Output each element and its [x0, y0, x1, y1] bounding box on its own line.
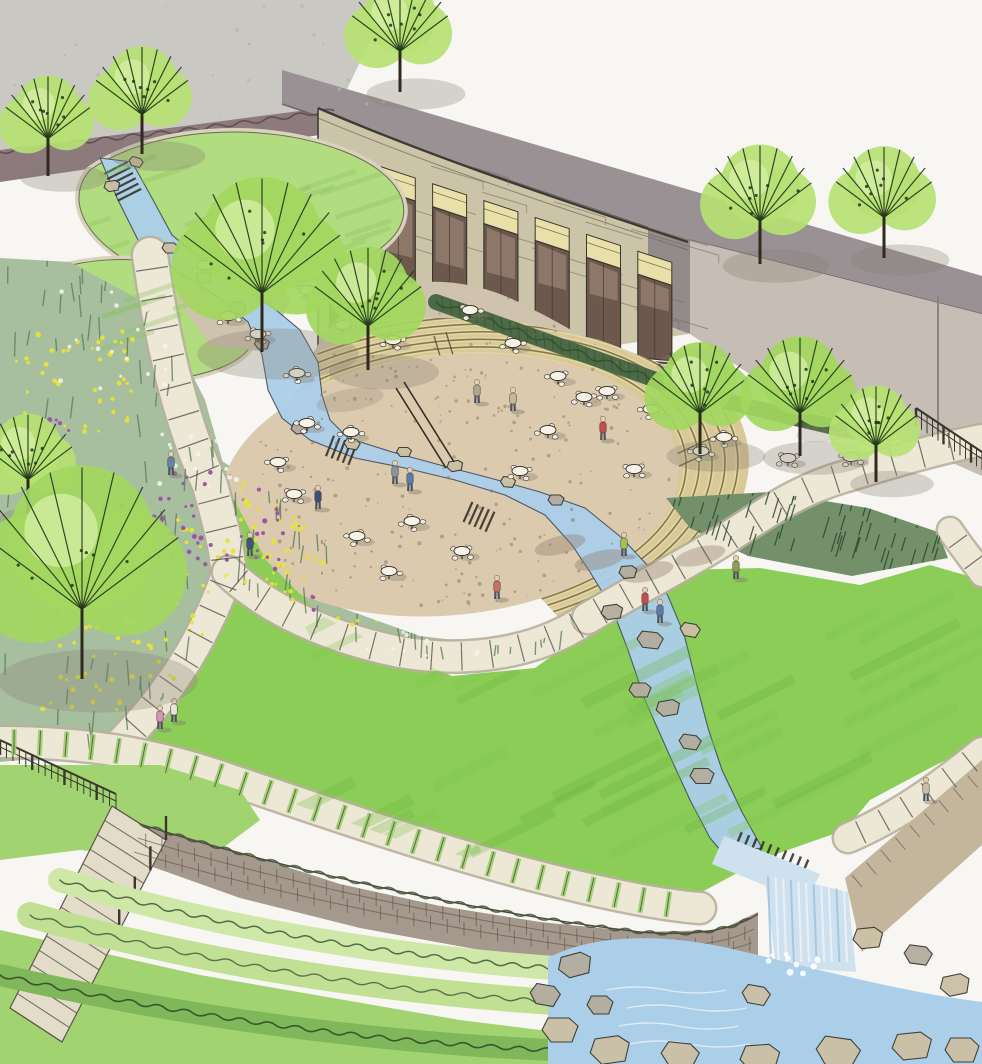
rock [548, 495, 564, 505]
flower-dot-yellow [190, 613, 195, 618]
flower-dot-white [58, 378, 63, 383]
flower-dot-white [110, 290, 113, 293]
flower-dot-yellow [126, 382, 129, 385]
flower-dot-yellow [302, 526, 306, 530]
flower-dot-yellow [132, 640, 135, 643]
flower-dot-yellow [277, 562, 282, 567]
flower-dot-yellow [26, 390, 29, 393]
flower-dot-yellow [117, 381, 122, 386]
flower-dot-purple [208, 470, 213, 475]
flower-dot-yellow [58, 644, 62, 648]
flower-dot-yellow [272, 572, 275, 575]
flower-dot-white [67, 345, 71, 349]
flower-dot-yellow [24, 356, 28, 360]
flower-dot-purple [277, 558, 280, 561]
flower-dot-purple [203, 482, 207, 486]
flower-dot-yellow [185, 540, 189, 544]
flower-dot-yellow [130, 337, 135, 342]
flower-dot-white [227, 475, 232, 480]
flower-dot-yellow [283, 590, 286, 593]
flower-dot-white [98, 386, 102, 390]
rock [629, 683, 651, 697]
flower-dot-yellow [83, 424, 87, 428]
flower-dot-white [162, 382, 167, 387]
flower-dot-yellow [302, 577, 305, 580]
flower-dot-yellow [230, 549, 235, 554]
flower-dot-yellow [256, 508, 259, 511]
flower-dot-yellow [321, 560, 326, 565]
flower-dot-yellow [356, 619, 359, 622]
landscape-rendering-canvas [0, 0, 982, 1064]
flower-dot-yellow [136, 639, 141, 644]
flower-dot-white [405, 633, 409, 637]
flower-dot-yellow [96, 340, 100, 344]
rock [690, 769, 714, 784]
flower-dot-yellow [288, 589, 292, 593]
flower-dot-yellow [222, 549, 227, 554]
flower-dot-white [136, 328, 140, 332]
flower-dot-yellow [98, 357, 102, 361]
flower-dot-yellow [313, 558, 317, 562]
flower-dot-yellow [190, 620, 194, 624]
flower-dot-white [224, 467, 228, 471]
flower-dot-yellow [36, 333, 41, 338]
flower-dot-white [401, 631, 404, 634]
flower-dot-purple [225, 553, 228, 556]
flower-dot-yellow [225, 538, 230, 543]
flower-dot-yellow [207, 590, 210, 593]
flower-dot-yellow [246, 503, 251, 508]
flower-dot-yellow [306, 555, 310, 559]
flower-dot-purple [158, 497, 162, 501]
flower-dot-yellow [176, 518, 180, 522]
flower-dot-white [168, 443, 172, 447]
flower-dot-yellow [271, 539, 276, 544]
flower-dot-yellow [150, 647, 153, 650]
flower-dot-yellow [252, 525, 257, 530]
flower-dot-yellow [129, 389, 132, 392]
flower-dot-purple [160, 516, 165, 521]
flower-dot-purple [266, 556, 269, 559]
flower-dot-yellow [84, 625, 88, 629]
flower-dot-yellow [284, 549, 288, 553]
flower-dot-white [163, 344, 168, 349]
flower-dot-purple [181, 482, 184, 485]
flower-dot-white [189, 434, 194, 439]
flower-dot-yellow [336, 616, 340, 620]
flower-dot-yellow [72, 641, 76, 645]
rock [397, 448, 412, 457]
flower-dot-yellow [122, 349, 126, 353]
flower-dot-yellow [111, 410, 115, 414]
flower-dot-white [114, 303, 118, 307]
flower-dot-yellow [110, 397, 114, 401]
flower-dot-purple [275, 511, 279, 515]
flower-dot-purple [203, 562, 207, 566]
flower-dot-white [196, 452, 200, 456]
flower-dot-yellow [114, 340, 117, 343]
flower-dot-purple [187, 550, 192, 555]
flower-dot-yellow [93, 388, 97, 392]
flower-dot-yellow [125, 418, 130, 423]
landscape-rendering [0, 0, 982, 1064]
flower-dot-yellow [186, 528, 189, 531]
flower-dot-yellow [66, 348, 70, 352]
flower-dot-yellow [120, 329, 124, 333]
flower-dot-purple [192, 514, 195, 517]
flower-dot-yellow [44, 362, 49, 367]
flower-dot-yellow [253, 538, 257, 542]
flower-dot-white [193, 467, 197, 471]
flower-dot-purple [256, 549, 259, 552]
flower-dot-yellow [199, 545, 202, 548]
rock [587, 996, 613, 1014]
flower-dot-yellow [242, 481, 246, 485]
flower-dot-yellow [26, 361, 30, 365]
flower-dot-yellow [189, 528, 194, 533]
flower-dot-purple [58, 421, 62, 425]
flower-dot-white [425, 639, 429, 643]
flower-dot-yellow [275, 503, 278, 506]
flower-dot-white [110, 350, 113, 353]
flower-dot-yellow [40, 371, 44, 375]
flower-dot-white [234, 477, 239, 482]
flower-dot-yellow [164, 638, 168, 642]
flower-dot-white [96, 346, 101, 351]
flower-dot-white [474, 652, 478, 656]
flower-dot-white [75, 338, 78, 341]
flower-dot-yellow [201, 584, 205, 588]
flower-dot-purple [167, 497, 171, 501]
flower-dot-white [164, 367, 167, 370]
flower-dot-yellow [147, 643, 151, 647]
flower-dot-yellow [265, 578, 268, 581]
flower-dot-yellow [216, 555, 220, 559]
flower-dot-yellow [62, 349, 66, 353]
flower-dot-yellow [281, 564, 285, 568]
flower-dot-purple [312, 608, 316, 612]
flower-dot-white [157, 481, 162, 486]
flower-dot-yellow [288, 549, 291, 552]
flower-dot-purple [181, 526, 186, 531]
flower-dot-yellow [49, 348, 54, 353]
flower-dot-purple [274, 507, 278, 511]
flower-dot-yellow [97, 430, 100, 433]
flower-dot-yellow [116, 636, 120, 640]
flower-dot-purple [261, 531, 265, 535]
flower-dot-purple [199, 535, 204, 540]
flower-dot-purple [190, 504, 194, 508]
flower-dot-yellow [290, 598, 294, 602]
flower-dot-yellow [98, 398, 102, 402]
flower-dot-white [391, 647, 395, 651]
flower-dot-purple [276, 519, 279, 522]
flower-dot-white [184, 459, 187, 462]
flower-dot-purple [273, 567, 277, 571]
flower-dot-yellow [243, 580, 247, 584]
flower-dot-white [125, 356, 129, 360]
flower-dot-white [160, 433, 164, 437]
window [635, 251, 675, 363]
flower-dot-purple [192, 534, 197, 539]
flower-dot-yellow [201, 633, 204, 636]
flower-dot-yellow [122, 377, 126, 381]
flower-dot-yellow [120, 341, 123, 344]
flower-dot-purple [196, 541, 199, 544]
flower-dot-yellow [239, 488, 243, 492]
flower-dot-white [169, 446, 172, 449]
flower-dot-yellow [285, 569, 290, 574]
flower-dot-yellow [290, 524, 295, 529]
flower-dot-purple [257, 488, 261, 492]
flower-dot-purple [67, 429, 70, 432]
flower-dot-purple [281, 531, 285, 535]
flower-dot-yellow [350, 622, 354, 626]
flower-dot-yellow [292, 515, 296, 519]
flower-dot-purple [184, 505, 187, 508]
flower-dot-yellow [296, 527, 301, 532]
flower-dot-white [146, 372, 150, 376]
flower-dot-purple [55, 419, 58, 422]
flower-dot-purple [262, 518, 267, 523]
flower-dot-yellow [274, 583, 277, 586]
flower-dot-white [119, 375, 122, 378]
flower-dot-yellow [91, 347, 94, 350]
flower-dot-white [59, 289, 64, 294]
flower-dot-purple [185, 476, 188, 479]
flower-dot-yellow [15, 360, 18, 363]
flower-dot-yellow [270, 582, 274, 586]
flower-dot-white [424, 654, 427, 657]
flower-dot-yellow [239, 518, 243, 522]
flower-dot-white [365, 647, 368, 650]
flower-dot-purple [209, 543, 213, 547]
flower-dot-yellow [82, 429, 87, 434]
flower-dot-purple [240, 535, 243, 538]
flower-dot-white [207, 484, 210, 487]
flower-dot-yellow [63, 425, 66, 428]
flower-dot-yellow [100, 335, 105, 340]
flower-dot-purple [196, 556, 200, 560]
flower-dot-purple [255, 532, 259, 536]
flower-dot-yellow [52, 378, 57, 383]
